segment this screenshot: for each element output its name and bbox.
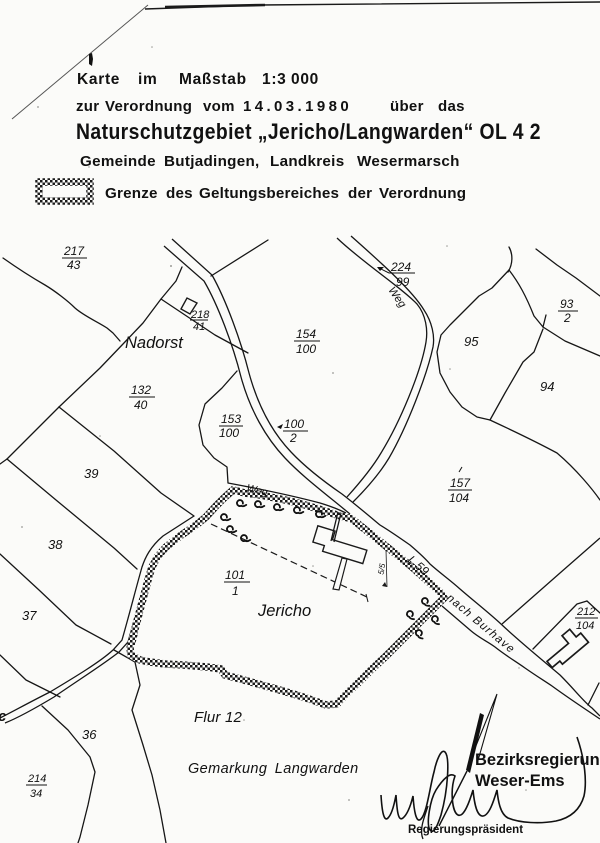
svg-text:132: 132: [131, 383, 151, 397]
svg-text:100: 100: [284, 417, 304, 431]
svg-text:1: 1: [232, 584, 239, 598]
svg-text:38: 38: [48, 537, 63, 552]
svg-text:39: 39: [84, 466, 98, 481]
svg-text:95: 95: [464, 334, 479, 349]
svg-text:Gemarkung Langwarden: Gemarkung Langwarden: [188, 761, 359, 777]
svg-text:nach Burhave: nach Burhave: [444, 592, 517, 656]
svg-text:Flur 12: Flur 12: [194, 709, 243, 726]
svg-text:94: 94: [540, 379, 554, 394]
svg-text:93: 93: [560, 297, 574, 311]
svg-text:2: 2: [563, 311, 571, 325]
svg-text:Nadorst: Nadorst: [125, 334, 184, 352]
svg-text:GrenzedesGeltungsbereichesderV: GrenzedesGeltungsbereichesderVerordnung: [105, 185, 466, 202]
svg-text:154: 154: [296, 327, 316, 341]
svg-text:212: 212: [576, 606, 595, 618]
svg-text:2: 2: [289, 431, 297, 445]
svg-text:zurVerordnungvom14.03.1980über: zurVerordnungvom14.03.1980überdas: [76, 98, 465, 115]
svg-text:41: 41: [193, 321, 205, 333]
svg-text:5/5: 5/5: [376, 562, 387, 575]
svg-text:KarteimMaßstab1:3000: KarteimMaßstab1:3000: [77, 71, 319, 88]
svg-text:34: 34: [30, 788, 42, 800]
svg-text:224: 224: [390, 260, 411, 274]
svg-text:Regierungspräsident: Regierungspräsident: [408, 824, 523, 836]
svg-text:157: 157: [450, 476, 471, 490]
svg-text:217: 217: [63, 244, 85, 258]
svg-text:40: 40: [134, 398, 148, 412]
svg-text:153: 153: [221, 412, 241, 426]
svg-text:Jericho: Jericho: [257, 602, 311, 620]
svg-text:99: 99: [396, 275, 410, 289]
svg-text:101: 101: [225, 568, 245, 582]
svg-text:Naturschutzgebiet „Jericho/Lan: Naturschutzgebiet „Jericho/Langwarden“ O…: [76, 120, 541, 145]
svg-text:218: 218: [190, 309, 210, 321]
svg-text:GemeindeButjadingen,LandkreisW: GemeindeButjadingen,LandkreisWesermarsch: [80, 153, 460, 170]
svg-text:37: 37: [22, 608, 37, 623]
svg-text:36: 36: [82, 727, 97, 742]
svg-text:104: 104: [449, 491, 469, 505]
svg-text:214: 214: [27, 773, 46, 785]
svg-text:43: 43: [67, 258, 81, 272]
svg-text:100: 100: [219, 426, 239, 440]
svg-text:L 59: L 59: [405, 553, 432, 579]
svg-text:Weser-Ems: Weser-Ems: [475, 772, 565, 790]
svg-text:100: 100: [296, 342, 316, 356]
svg-text:104: 104: [576, 620, 594, 632]
svg-text:c: c: [0, 708, 7, 725]
